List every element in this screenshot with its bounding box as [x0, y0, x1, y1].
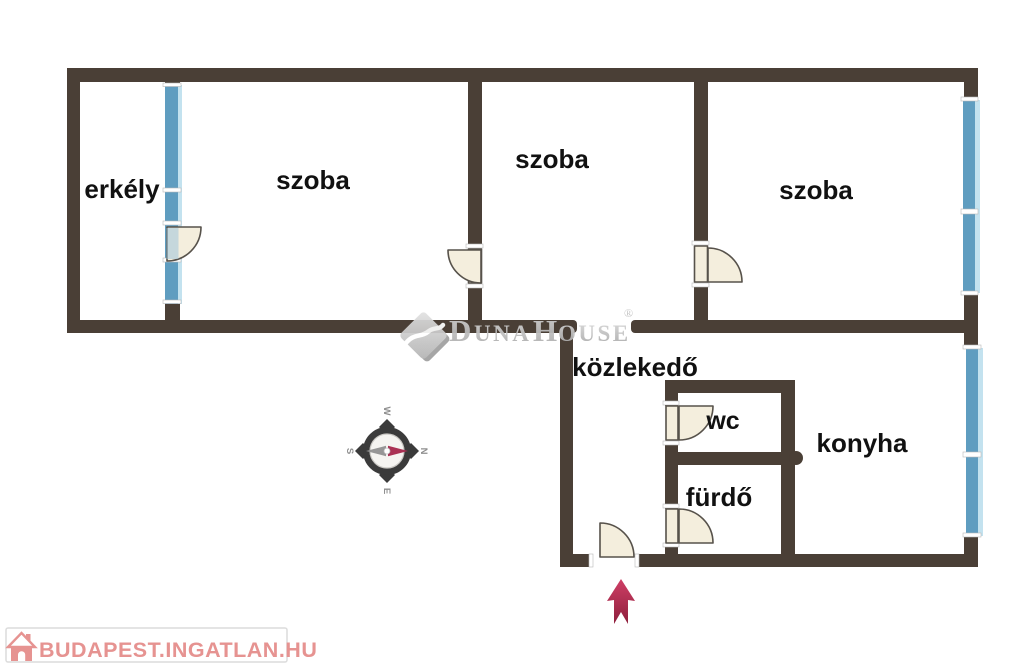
compass-label-n: N: [418, 448, 429, 455]
konyha-window-highlight: [978, 348, 983, 536]
room-label-szoba-right: szoba: [779, 175, 853, 205]
door-tick: [466, 284, 483, 288]
room-label-furdo: fürdő: [686, 482, 752, 512]
duna-una: UNA: [474, 321, 531, 346]
window-tick: [961, 209, 978, 214]
compass-label-s: S: [344, 448, 355, 454]
window-tick: [963, 452, 981, 457]
konyha-window: [966, 348, 980, 536]
compass-label-w: W: [381, 407, 392, 416]
window-tick: [961, 291, 978, 295]
door-tick: [589, 554, 593, 567]
room-label-erkely: erkély: [84, 174, 160, 204]
compass-label-e: E: [381, 488, 392, 494]
room-label-wc: wc: [705, 407, 739, 435]
wall-core-right: [781, 380, 795, 567]
window-tick: [963, 533, 981, 537]
compass-icon: W N E S: [344, 407, 429, 495]
footer-logo-text: BUDAPEST.INGATLAN.HU: [39, 638, 317, 662]
balcony-door-leaf-tint: [167, 228, 179, 259]
duna-ouse: OUSE: [558, 321, 631, 346]
doors: [167, 227, 742, 557]
door-tick: [692, 283, 709, 287]
door-tick: [663, 441, 679, 445]
window-tick: [163, 221, 181, 225]
dunahouse-diamond-icon: [399, 311, 451, 363]
furdo-door: [679, 509, 713, 543]
compass-hub: [384, 448, 390, 454]
wall-bottom-left-of-entrance: [560, 554, 592, 567]
wall-wc-furdo-divider: [678, 452, 781, 465]
wall-middle-right: [631, 320, 978, 333]
door-tick: [663, 401, 679, 405]
szoba2-szoba3-door: [708, 248, 742, 282]
window-tick: [163, 83, 181, 87]
door-tick: [635, 554, 639, 567]
wall-core-left-b: [665, 441, 678, 509]
duna-h: H: [533, 313, 559, 348]
szoba-right-window-highlight: [975, 100, 980, 293]
furdo-door-leaf: [666, 509, 678, 543]
door-tick: [466, 244, 483, 248]
wall-szoba2-szoba3-upper: [694, 80, 708, 245]
szoba2-szoba3-door-leaf: [695, 246, 708, 282]
door-tick: [692, 241, 709, 245]
entrance-door: [600, 523, 634, 557]
room-label-kozlekedo: közlekedő: [572, 352, 698, 382]
wall-szoba2-szoba3-lower: [694, 283, 708, 322]
floorplan-page: erkély szoba szoba szoba közlekedő wc fü…: [0, 0, 1024, 666]
balcony-window-strip: [165, 85, 180, 304]
window-tick: [163, 188, 181, 192]
wall-lower-right-bottom-stub: [964, 536, 978, 567]
window-tick: [963, 345, 981, 349]
duna-d: D: [449, 313, 473, 348]
wall-knob-dot: [789, 451, 803, 465]
room-label-szoba-left: szoba: [276, 165, 350, 195]
balcony-window-highlight: [178, 85, 182, 304]
door-tick: [663, 504, 679, 508]
wall-szoba1-szoba2-upper: [468, 80, 482, 248]
wc-door-leaf: [666, 406, 678, 440]
wall-bottom-right-of-entrance: [639, 554, 978, 567]
entrance-arrow-icon: [607, 579, 635, 624]
floorplan-canvas: erkély szoba szoba szoba közlekedő wc fü…: [0, 0, 1024, 666]
szoba1-szoba2-door: [448, 250, 481, 283]
szoba-right-window: [963, 100, 977, 293]
wall-left: [67, 68, 80, 333]
wall-top: [67, 68, 978, 82]
wall-lower-left: [560, 331, 573, 567]
balcony-wall-stub-bottom: [165, 303, 180, 321]
ingatlan-logo: BUDAPEST.INGATLAN.HU: [6, 628, 317, 662]
room-label-konyha: konyha: [816, 428, 908, 458]
window-tick: [961, 97, 978, 101]
duna-registered-icon: ®: [624, 306, 633, 320]
wall-right-upper-stub: [964, 68, 978, 100]
house-door: [18, 651, 25, 661]
walls: [67, 68, 978, 567]
room-label-szoba-middle: szoba: [515, 144, 589, 174]
window-tick: [163, 300, 181, 304]
